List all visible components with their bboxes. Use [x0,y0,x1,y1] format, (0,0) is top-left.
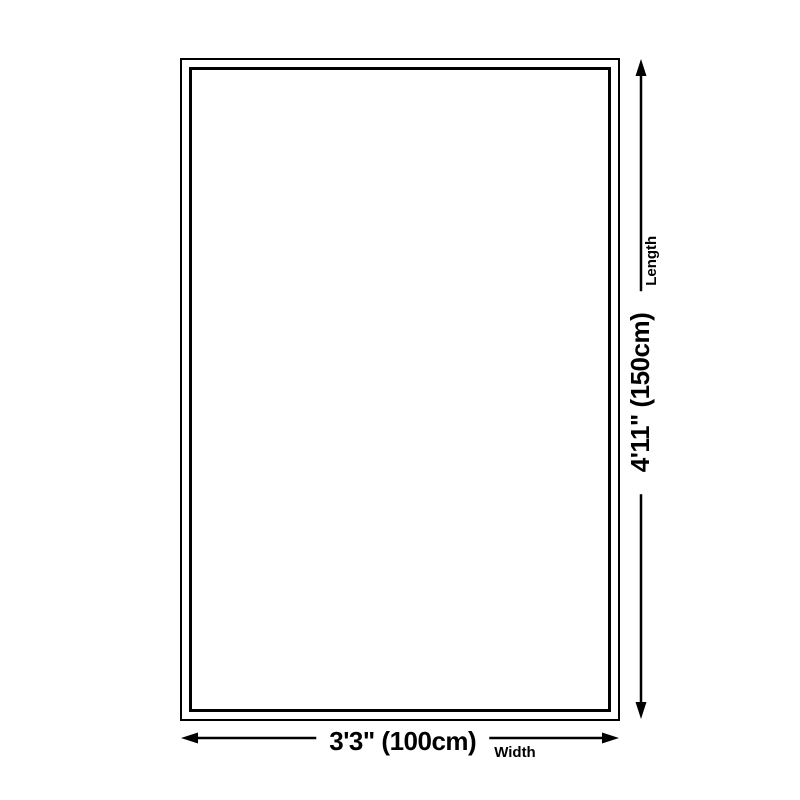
width-value: 3'3" (100cm) [316,727,489,757]
arrow-up-icon [636,59,647,76]
width-caption: Width [494,744,536,761]
width-dimension-label: 3'3" (100cm)Width [316,727,535,757]
arrow-left-icon [181,733,198,744]
length-dimension-label: 4'11" (150cm)Length [626,236,656,494]
rug-inner-border [189,67,611,712]
arrow-right-icon [602,733,619,744]
rug-outline [180,58,620,721]
rug-dimension-diagram: 4'11" (150cm)Length 3'3" (100cm)Width [0,0,800,800]
arrow-down-icon [636,702,647,719]
length-caption: Length [643,236,660,286]
length-value: 4'11" (150cm) [626,291,656,494]
